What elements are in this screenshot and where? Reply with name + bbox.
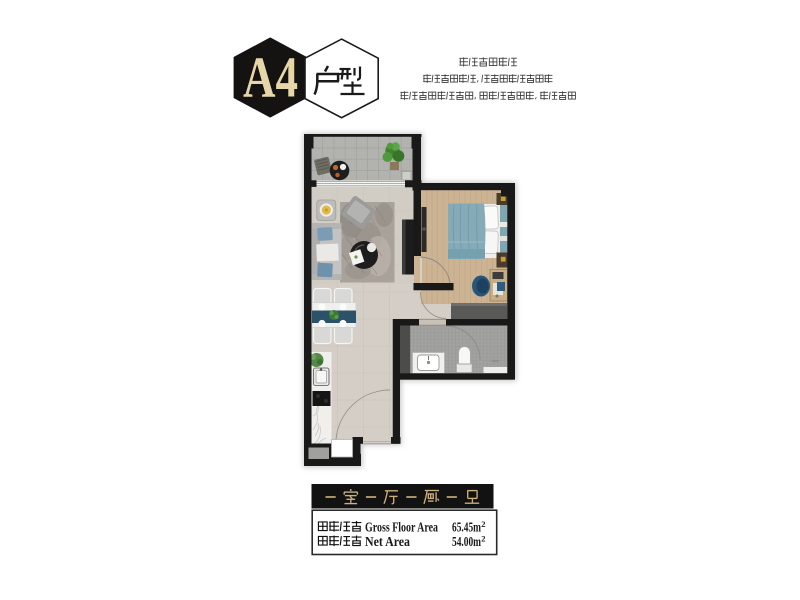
svg-text:Gross Floor Area: Gross Floor Area	[365, 520, 438, 535]
svg-text:65.45m: 65.45m	[452, 520, 482, 535]
svg-text:2: 2	[481, 534, 485, 544]
svg-text:A4: A4	[243, 45, 298, 110]
svg-text:Net Area: Net Area	[365, 534, 410, 549]
svg-text:2: 2	[481, 519, 485, 529]
svg-text:54.00m: 54.00m	[452, 534, 482, 549]
